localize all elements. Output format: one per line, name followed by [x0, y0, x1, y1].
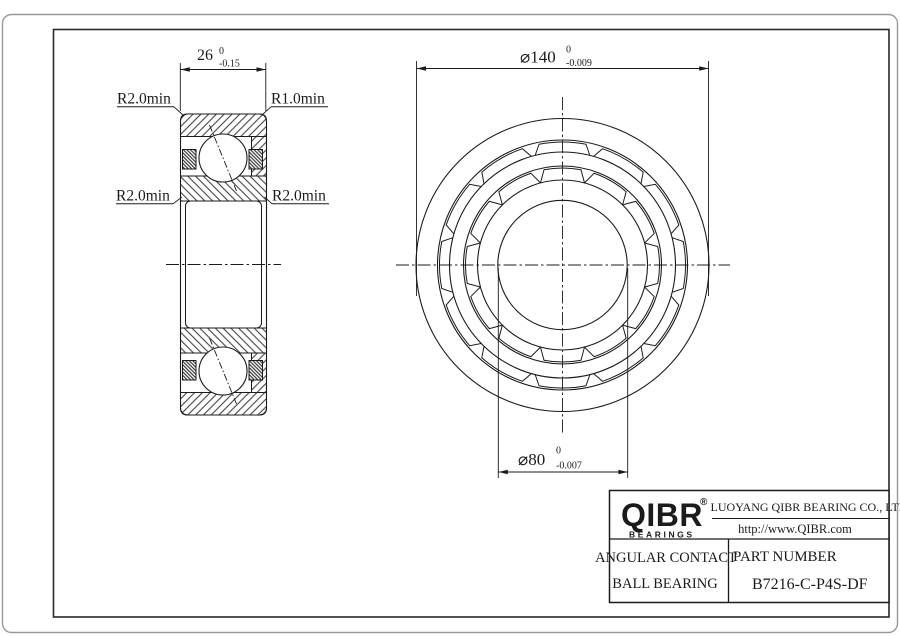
outer-ring-section	[181, 114, 267, 137]
radius-label-mid-right: R2.0min	[272, 188, 326, 205]
bearing-drawing-svg: 26 0 -0.15 R2.0min R1.0min R2.0min R2.0m…	[0, 0, 900, 636]
product-type-line1: ANGULAR CONTACT	[595, 550, 737, 566]
section-top-half	[181, 114, 267, 201]
logo-text: QIBR	[621, 497, 703, 533]
company-website: http://www.QIBR.com	[738, 522, 852, 536]
drawing-page: 26 0 -0.15 R2.0min R1.0min R2.0min R2.0m…	[0, 0, 900, 636]
part-number-label: PART NUMBER	[733, 549, 837, 565]
cage-hatch	[249, 361, 263, 381]
cage-hatch	[249, 150, 263, 170]
radius-label-top-right: R1.0min	[271, 91, 325, 108]
logo-tagline: BEARINGS	[629, 530, 695, 540]
registered-mark-icon: ®	[700, 497, 708, 508]
bore-dim-tol-upper: 0	[556, 446, 561, 457]
width-dim-tol-lower: -0.15	[219, 59, 240, 70]
cage-hatch	[183, 150, 197, 170]
outer-ring-section	[181, 393, 267, 416]
product-type-line2: BALL BEARING	[612, 576, 718, 592]
width-dim-tol-upper: 0	[219, 46, 224, 57]
bore-dim-value: ⌀80	[518, 450, 545, 469]
part-number-value: B7216-C-P4S-DF	[752, 576, 868, 593]
outer-dim-tol-lower: -0.009	[566, 58, 592, 69]
outer-dim-value: ⌀140	[520, 48, 556, 67]
width-dim-value: 26	[197, 47, 213, 64]
section-bottom-half	[181, 328, 267, 415]
radius-label-top-left: R2.0min	[117, 91, 171, 108]
cage-hatch	[183, 361, 197, 381]
company-name: LUOYANG QIBR BEARING CO., LTD	[711, 500, 900, 514]
bore-dim-tol-lower: -0.007	[556, 461, 582, 472]
title-block: QIBR ® BEARINGS LUOYANG QIBR BEARING CO.…	[595, 491, 900, 603]
radius-label-mid-left: R2.0min	[116, 188, 170, 205]
outer-dim-tol-upper: 0	[566, 45, 571, 56]
